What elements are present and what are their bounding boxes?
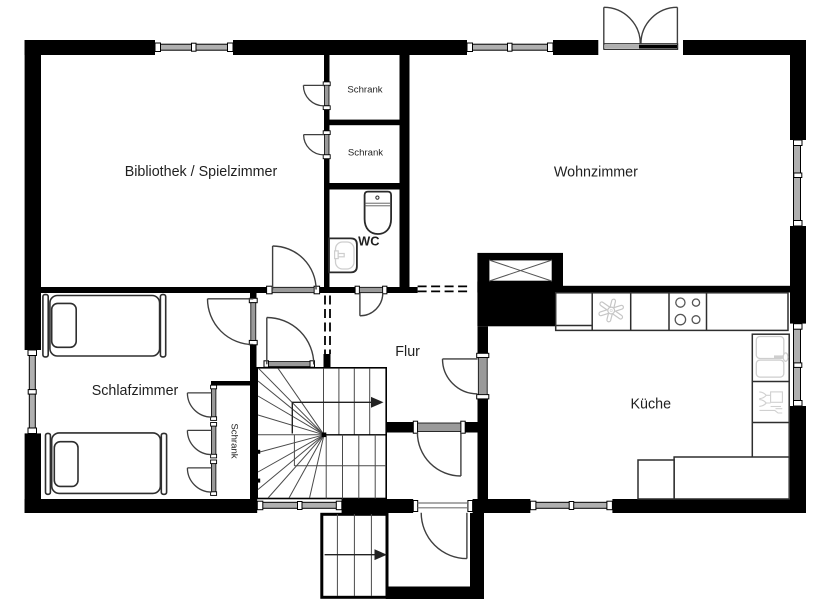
svg-text:Wohnzimmer: Wohnzimmer xyxy=(554,164,638,180)
svg-text:WC: WC xyxy=(358,234,379,249)
svg-text:Schlafzimmer: Schlafzimmer xyxy=(92,383,179,399)
svg-text:Flur: Flur xyxy=(395,344,420,360)
svg-text:Schrank: Schrank xyxy=(347,85,382,96)
svg-text:Bibliothek / Spielzimmer: Bibliothek / Spielzimmer xyxy=(125,164,278,180)
svg-text:Schrank: Schrank xyxy=(229,423,240,458)
svg-text:Küche: Küche xyxy=(631,396,672,412)
svg-text:Schrank: Schrank xyxy=(348,148,383,159)
